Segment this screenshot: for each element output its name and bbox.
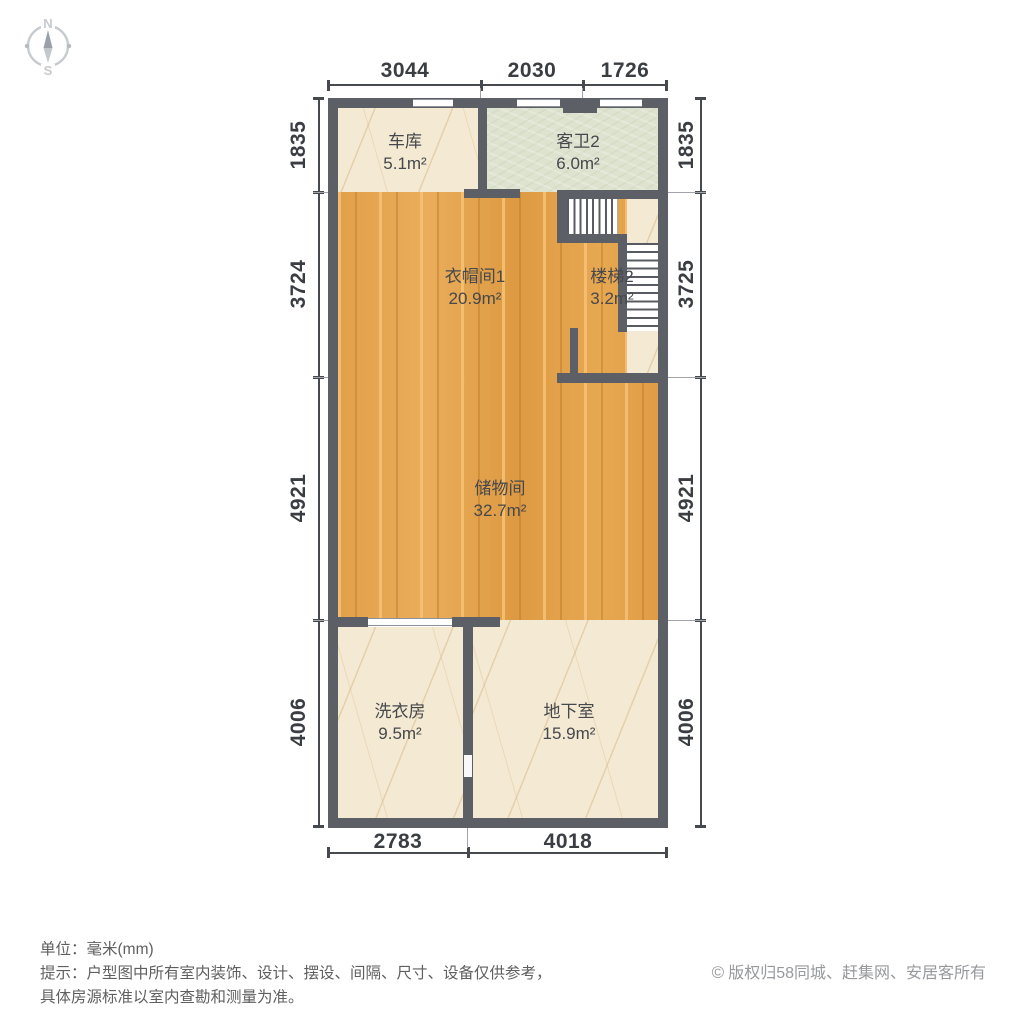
stairs-treads-horizontal-run	[567, 199, 618, 235]
disclaimer-line-2: 具体房源标准以室内查勘和测量为准。	[40, 986, 552, 1010]
room-area: 5.1m²	[330, 153, 480, 175]
dim-right-3: 4921	[676, 448, 698, 548]
room-label-stairs2: 楼梯2 3.2m²	[537, 266, 687, 310]
room-area: 20.9m²	[400, 288, 550, 310]
window-top-3	[600, 99, 642, 107]
compass-south-label: S	[44, 63, 53, 78]
dim-left-4: 4006	[288, 672, 310, 772]
wall-storage-bottom-right	[452, 617, 500, 627]
floorplan-page: N S 3044 2030 1726	[0, 0, 1034, 1034]
dim-tick	[467, 847, 470, 858]
dim-top-1: 3044	[360, 59, 450, 83]
dim-bottom-1: 2783	[353, 830, 443, 854]
dim-tick	[327, 847, 330, 858]
room-label-bath2: 客卫2 6.0m²	[503, 131, 653, 175]
dim-bottom-2: 4018	[523, 830, 613, 854]
copyright-icon: ©	[712, 963, 725, 982]
door-opening-laundry	[368, 618, 452, 626]
dim-ext	[668, 377, 706, 378]
footer-notes: 单位：毫米(mm) 提示：户型图中所有室内装饰、设计、摆设、间隔、尺寸、设备仅供…	[40, 938, 552, 1010]
dim-tick	[695, 825, 706, 828]
dim-ext	[313, 620, 328, 621]
stair-landing-lower	[627, 331, 658, 373]
room-label-storage: 储物间 32.7m²	[425, 478, 575, 522]
dim-ext	[582, 88, 583, 98]
dim-tick	[327, 80, 330, 91]
wall-stair-mid	[557, 234, 627, 243]
dim-tick	[313, 825, 324, 828]
room-area: 3.2m²	[537, 288, 687, 310]
dim-ext	[668, 620, 706, 621]
room-label-cloakroom1: 衣帽间1 20.9m²	[400, 266, 550, 310]
room-name: 车库	[330, 131, 480, 153]
dim-right-1: 1835	[676, 95, 698, 195]
room-label-laundry: 洗衣房 9.5m²	[325, 701, 475, 745]
room-name: 衣帽间1	[400, 266, 550, 288]
dim-right-4: 4006	[676, 672, 698, 772]
unit-label: 单位：毫米(mm)	[40, 938, 552, 962]
room-name: 地下室	[494, 701, 644, 723]
door-marker-basement	[464, 755, 472, 777]
copyright-text: 版权归58同城、赶集网、安居客所有	[728, 965, 986, 982]
dim-top-3: 1726	[580, 59, 670, 83]
wall-storage-bottom-left	[328, 617, 368, 627]
room-name: 楼梯2	[537, 266, 687, 288]
dim-ext	[313, 377, 328, 378]
compass-north-label: N	[43, 16, 52, 31]
wall-right	[658, 98, 668, 828]
window-top-2	[517, 99, 560, 107]
room-area: 6.0m²	[503, 153, 653, 175]
room-name: 洗衣房	[325, 701, 475, 723]
copyright-notice: ©版权归58同城、赶集网、安居客所有	[712, 963, 986, 984]
stair-landing-upper	[627, 199, 658, 243]
dim-top-2: 2030	[487, 59, 577, 83]
room-area: 9.5m²	[325, 723, 475, 745]
dim-line-top	[328, 84, 667, 86]
main-wood-floor	[338, 192, 658, 621]
dim-ext	[467, 828, 468, 848]
dim-tick	[313, 97, 324, 100]
wall-stair-door-stub	[570, 328, 578, 375]
room-label-basement: 地下室 15.9m²	[494, 701, 644, 745]
wall-bottom	[328, 818, 668, 828]
dim-ext	[313, 192, 328, 193]
dim-line-left	[318, 98, 320, 827]
wall-garage-stub	[464, 189, 520, 198]
room-area: 15.9m²	[494, 723, 644, 745]
room-area: 32.7m²	[425, 500, 575, 522]
dim-left-1: 1835	[288, 95, 310, 195]
dim-ext	[480, 88, 481, 98]
dim-tick	[665, 847, 668, 858]
dim-left-3: 4921	[288, 448, 310, 548]
window-top-1	[413, 99, 453, 107]
room-label-garage: 车库 5.1m²	[330, 131, 480, 175]
room-name: 客卫2	[503, 131, 653, 153]
dim-line-right	[700, 98, 702, 827]
wall-top-pillar	[563, 103, 597, 113]
wall-bath2-bottom	[557, 190, 668, 199]
dim-left-2: 3724	[288, 234, 310, 334]
compass-icon: N S	[14, 8, 84, 78]
disclaimer-line-1: 提示：户型图中所有室内装饰、设计、摆设、间隔、尺寸、设备仅供参考，	[40, 962, 552, 986]
room-name: 储物间	[425, 478, 575, 500]
